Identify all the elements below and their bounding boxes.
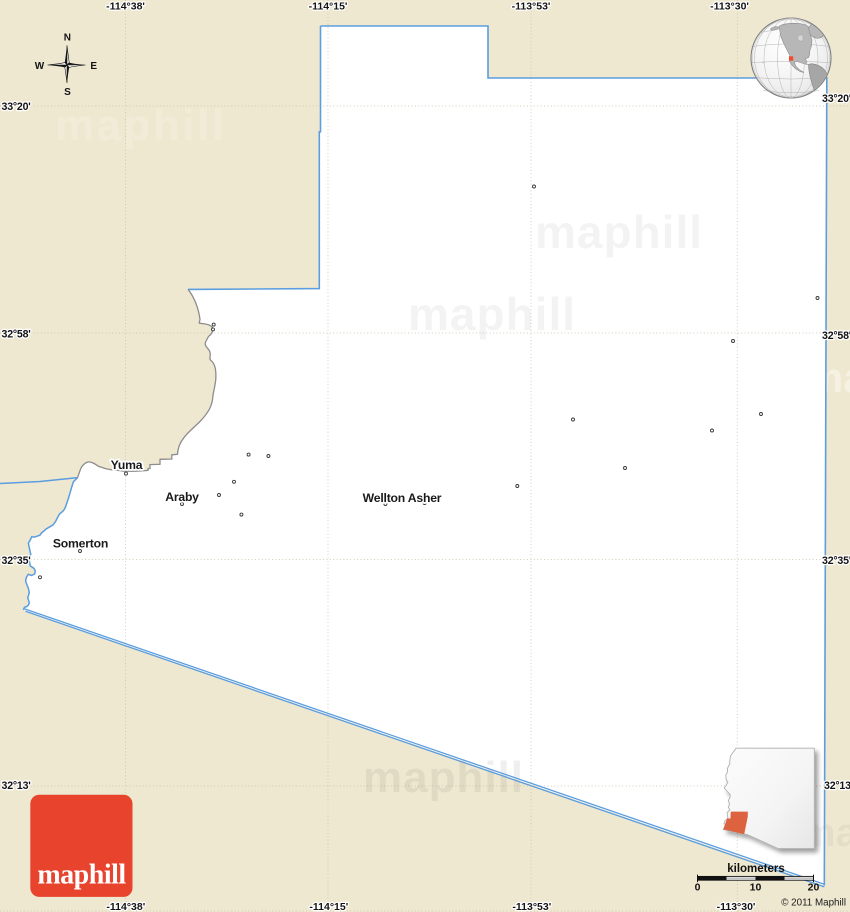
svg-text:-113°53': -113°53': [512, 901, 551, 912]
svg-text:-114°38': -114°38': [106, 901, 145, 912]
svg-text:33°20': 33°20': [822, 93, 850, 105]
svg-text:maphill: maphill: [408, 288, 576, 340]
svg-text:S: S: [64, 87, 71, 98]
svg-text:-113°30': -113°30': [710, 1, 749, 13]
svg-text:Wellton Asher: Wellton Asher: [363, 491, 442, 505]
svg-text:32°35': 32°35': [2, 555, 31, 567]
svg-text:© 2011 Maphill: © 2011 Maphill: [781, 898, 846, 909]
svg-text:32°35': 32°35': [822, 555, 850, 567]
svg-text:E: E: [90, 61, 97, 72]
svg-text:maphill: maphill: [535, 206, 703, 258]
svg-text:ma: ma: [806, 354, 850, 401]
svg-text:-114°15': -114°15': [309, 1, 348, 13]
svg-text:N: N: [64, 33, 71, 44]
svg-text:kilometers: kilometers: [727, 863, 785, 875]
svg-text:32°58': 32°58': [2, 328, 31, 340]
svg-text:maphill: maphill: [37, 860, 126, 891]
svg-text:maphill: maphill: [55, 101, 227, 150]
svg-text:32°13': 32°13': [2, 780, 31, 792]
svg-text:-113°30': -113°30': [717, 901, 756, 912]
svg-text:0: 0: [695, 882, 701, 894]
svg-text:W: W: [35, 61, 45, 72]
svg-text:Somerton: Somerton: [53, 537, 108, 551]
svg-text:-113°53': -113°53': [512, 1, 551, 13]
svg-text:32°13': 32°13': [824, 780, 850, 792]
svg-text:maphill: maphill: [363, 753, 524, 802]
svg-text:Araby: Araby: [165, 490, 199, 504]
svg-text:20: 20: [808, 882, 820, 894]
svg-text:33°20': 33°20': [2, 101, 31, 113]
svg-text:-114°15': -114°15': [309, 901, 348, 912]
svg-text:Yuma: Yuma: [111, 458, 143, 472]
svg-text:10: 10: [750, 882, 762, 894]
svg-text:-114°38': -114°38': [106, 1, 145, 13]
svg-text:32°58': 32°58': [822, 330, 850, 342]
